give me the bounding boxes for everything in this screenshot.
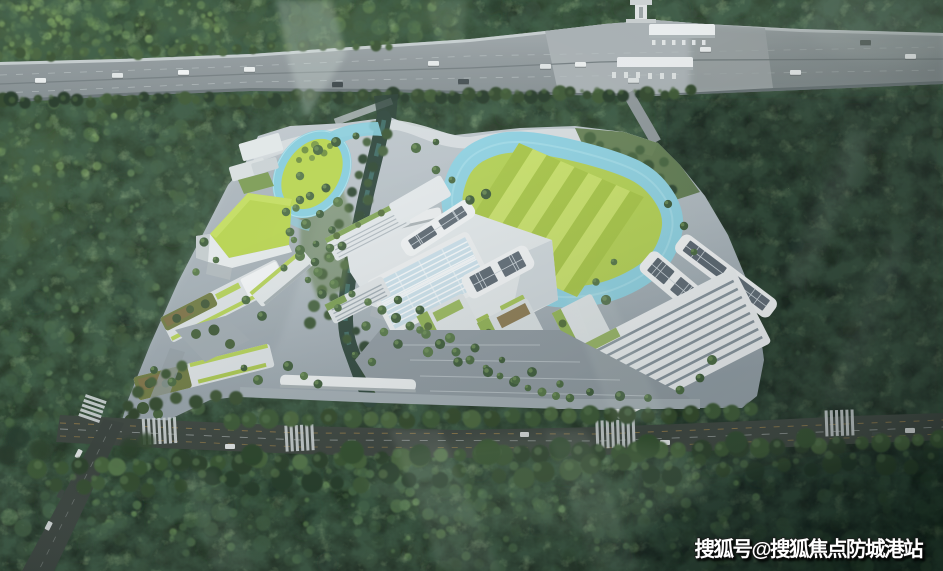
svg-text:搜狐号@搜狐焦点防城港站: 搜狐号@搜狐焦点防城港站: [695, 537, 924, 561]
